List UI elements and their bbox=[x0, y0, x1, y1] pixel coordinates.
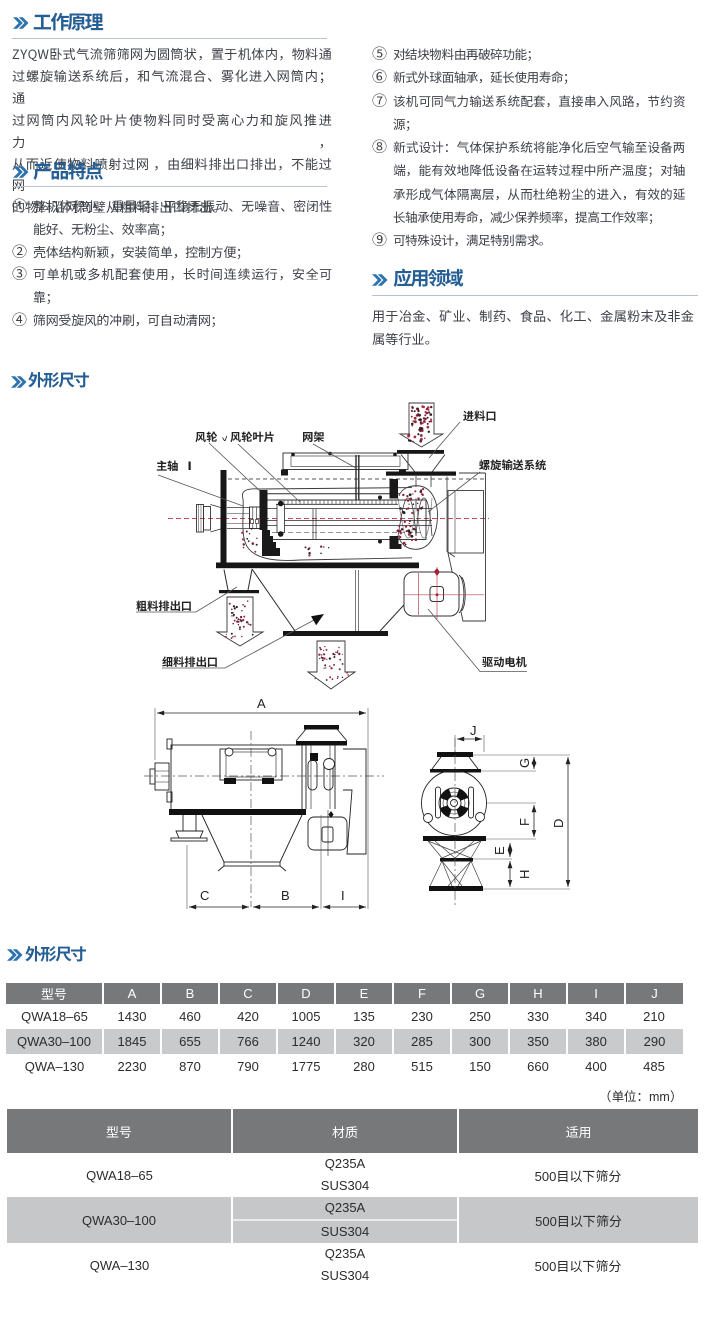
svg-text:进料口: 进料口 bbox=[463, 408, 497, 424]
svg-text:B: B bbox=[281, 888, 290, 903]
svg-text:风轮: 风轮 bbox=[195, 429, 217, 445]
svg-text:E: E bbox=[492, 846, 507, 855]
svg-text:风轮叶片: 风轮叶片 bbox=[230, 429, 275, 445]
svg-text:J: J bbox=[470, 723, 477, 738]
svg-text:D: D bbox=[551, 819, 566, 828]
svg-text:F: F bbox=[517, 818, 532, 826]
svg-text:驱动电机: 驱动电机 bbox=[482, 654, 527, 670]
svg-text:A: A bbox=[257, 696, 266, 711]
svg-text:主轴: 主轴 bbox=[156, 458, 178, 474]
svg-text:C: C bbox=[200, 888, 209, 903]
svg-text:H: H bbox=[517, 870, 532, 879]
svg-text:螺旋输送系统: 螺旋输送系统 bbox=[479, 457, 547, 473]
svg-text:网架: 网架 bbox=[302, 429, 324, 445]
svg-text:G: G bbox=[517, 758, 532, 768]
svg-text:I: I bbox=[341, 888, 345, 903]
